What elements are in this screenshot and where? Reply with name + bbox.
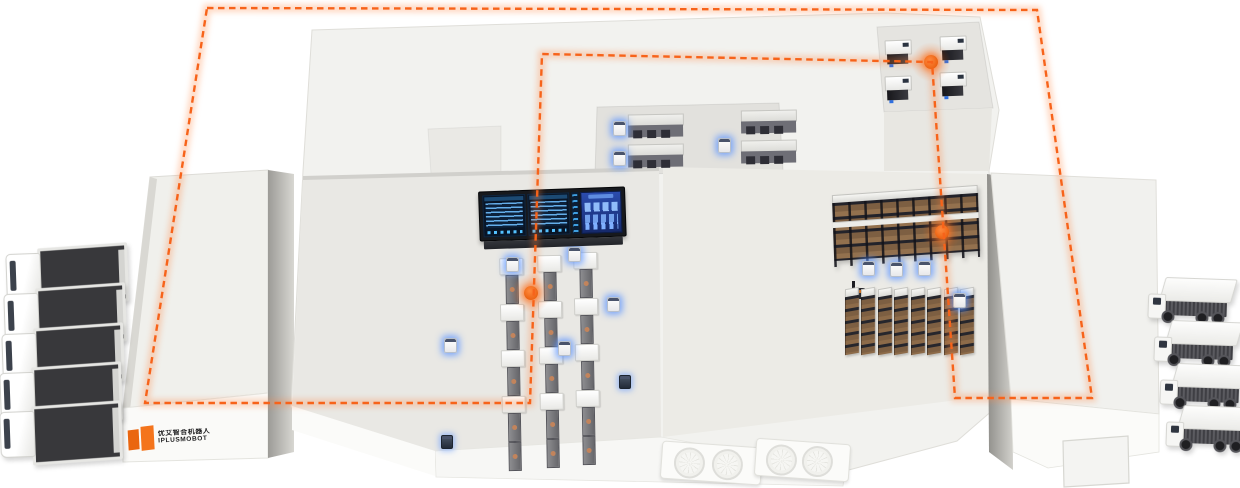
workstation-bench [741,110,795,135]
line-conveyor [546,439,560,468]
line-conveyor [507,367,521,396]
line-conveyor [581,407,595,436]
line-machine [502,396,526,413]
logo-mark-block-2 [140,425,154,451]
screen-frame [478,186,627,241]
bench-front-panel [628,125,683,138]
machine-base [887,54,908,65]
machine-lamp [958,39,964,43]
line-conveyor [581,361,595,390]
rack-boxes [878,295,892,355]
brand-logo: 优艾智合机器人 IPLUSMOBOT [127,416,247,456]
line-conveyor [582,436,596,465]
route-waypoint-marker [922,212,962,252]
machine-indicator [889,100,893,103]
truck-box-roof [1165,320,1240,346]
windshield [4,419,11,449]
line-machine [574,298,598,315]
dashboard-screen [478,186,627,249]
rack-boxes [861,295,875,355]
route-waypoint-marker [911,42,951,82]
machine-base [887,90,908,101]
rack-boxes [845,295,859,355]
dock-fan-icon [801,445,834,478]
machine-indicator [944,96,948,99]
waypoint-dot [935,225,949,239]
rack-boxes [911,295,925,355]
dock-pad-1 [660,441,763,486]
rack-row [894,287,908,355]
machine-indicator [889,64,893,67]
agv-robot [607,297,620,312]
bench-front-panel [741,121,796,134]
agv-robot [613,151,626,166]
windshield [10,261,17,291]
screen-kpi-panel [580,191,622,234]
workstation-bench [628,114,682,139]
line-conveyor [506,321,520,350]
dock-pad-2 [754,438,851,483]
agv-robot [862,261,875,276]
route-waypoint-marker [511,273,551,313]
table-pager-dots [487,230,522,235]
bench-front-panel [741,151,796,164]
kpi-title-bar [588,194,613,199]
logo-text-bottom: IPLUSMOBOT [158,436,211,445]
workstation-bench [628,144,682,169]
line-machine [501,350,525,367]
rack-row [911,287,925,355]
rack-row [861,287,875,355]
windshield [1153,298,1161,305]
truck-box-roof [1159,277,1238,303]
machine-lamp [903,79,909,83]
windshield [1159,341,1167,348]
factory-illustration: 优艾智合机器人 IPLUSMOBOT [0,0,1240,488]
dock-fan-icon [765,443,798,476]
wheel [1179,438,1192,451]
agv-robot [613,121,626,136]
agv-robot [918,261,931,276]
table-header [484,196,523,201]
truck-trailer [31,400,123,465]
agv-robot-dark [619,375,631,389]
truck-inbound [0,402,119,460]
logo-mark-block-1 [128,429,140,450]
line-conveyor [545,364,559,393]
truck-box-roof [1177,405,1240,431]
line-machine [575,344,599,361]
windshield [1171,426,1179,433]
agv-robot [444,338,457,353]
machine-base [942,86,963,97]
truck-box-roof [1171,363,1240,389]
agv-robot [568,247,581,262]
logo-text: 优艾智合机器人 IPLUSMOBOT [158,428,211,445]
agv-robot [506,257,519,272]
line-machine [537,255,561,272]
agv-robot [890,262,903,277]
windshield [1165,384,1173,391]
line-conveyor [507,413,521,442]
machine-lamp [958,75,964,79]
table-pager-dots [532,228,567,233]
table-header [529,194,568,199]
rack-row [878,287,892,355]
dock-fan-icon [673,446,706,479]
waypoint-dot [524,286,538,300]
agv-robot [953,293,966,308]
agv-robot [718,138,731,153]
table-rows [530,200,567,226]
truck-cab [0,411,36,458]
agv-robot [558,341,571,356]
waypoint-dot [924,55,938,69]
line-conveyor [580,315,594,344]
wheel [1213,439,1226,452]
scene-objects: 优艾智合机器人 IPLUSMOBOT [0,0,1240,488]
table-rows [485,202,522,228]
line-machine [576,390,600,407]
screen-icon-column [571,192,579,234]
line-conveyor [579,269,593,298]
logo-mark-icon [127,425,155,451]
production-line [573,252,601,465]
rack-row [845,287,859,355]
screen-data-table-right [527,192,571,235]
rack-boxes [894,295,908,355]
bench-front-panel [628,155,683,168]
workstation-bench [741,140,795,165]
test-machine [883,39,914,68]
screen-data-table-left [482,194,526,237]
rack-boxes [927,295,941,355]
machine-lamp [903,43,909,47]
dock-fan-icon [711,448,744,481]
rack-row [927,287,941,355]
line-conveyor [508,442,522,471]
line-machine [540,393,564,410]
line-conveyor [545,410,559,439]
windshield [8,301,15,331]
test-machine [883,75,914,104]
wheel [1229,440,1240,453]
agv-robot-dark [441,435,453,449]
kpi-bottom-bars [586,222,619,230]
kpi-big-digits [585,202,618,212]
line-conveyor [544,318,558,347]
truck-outbound [1167,404,1240,455]
